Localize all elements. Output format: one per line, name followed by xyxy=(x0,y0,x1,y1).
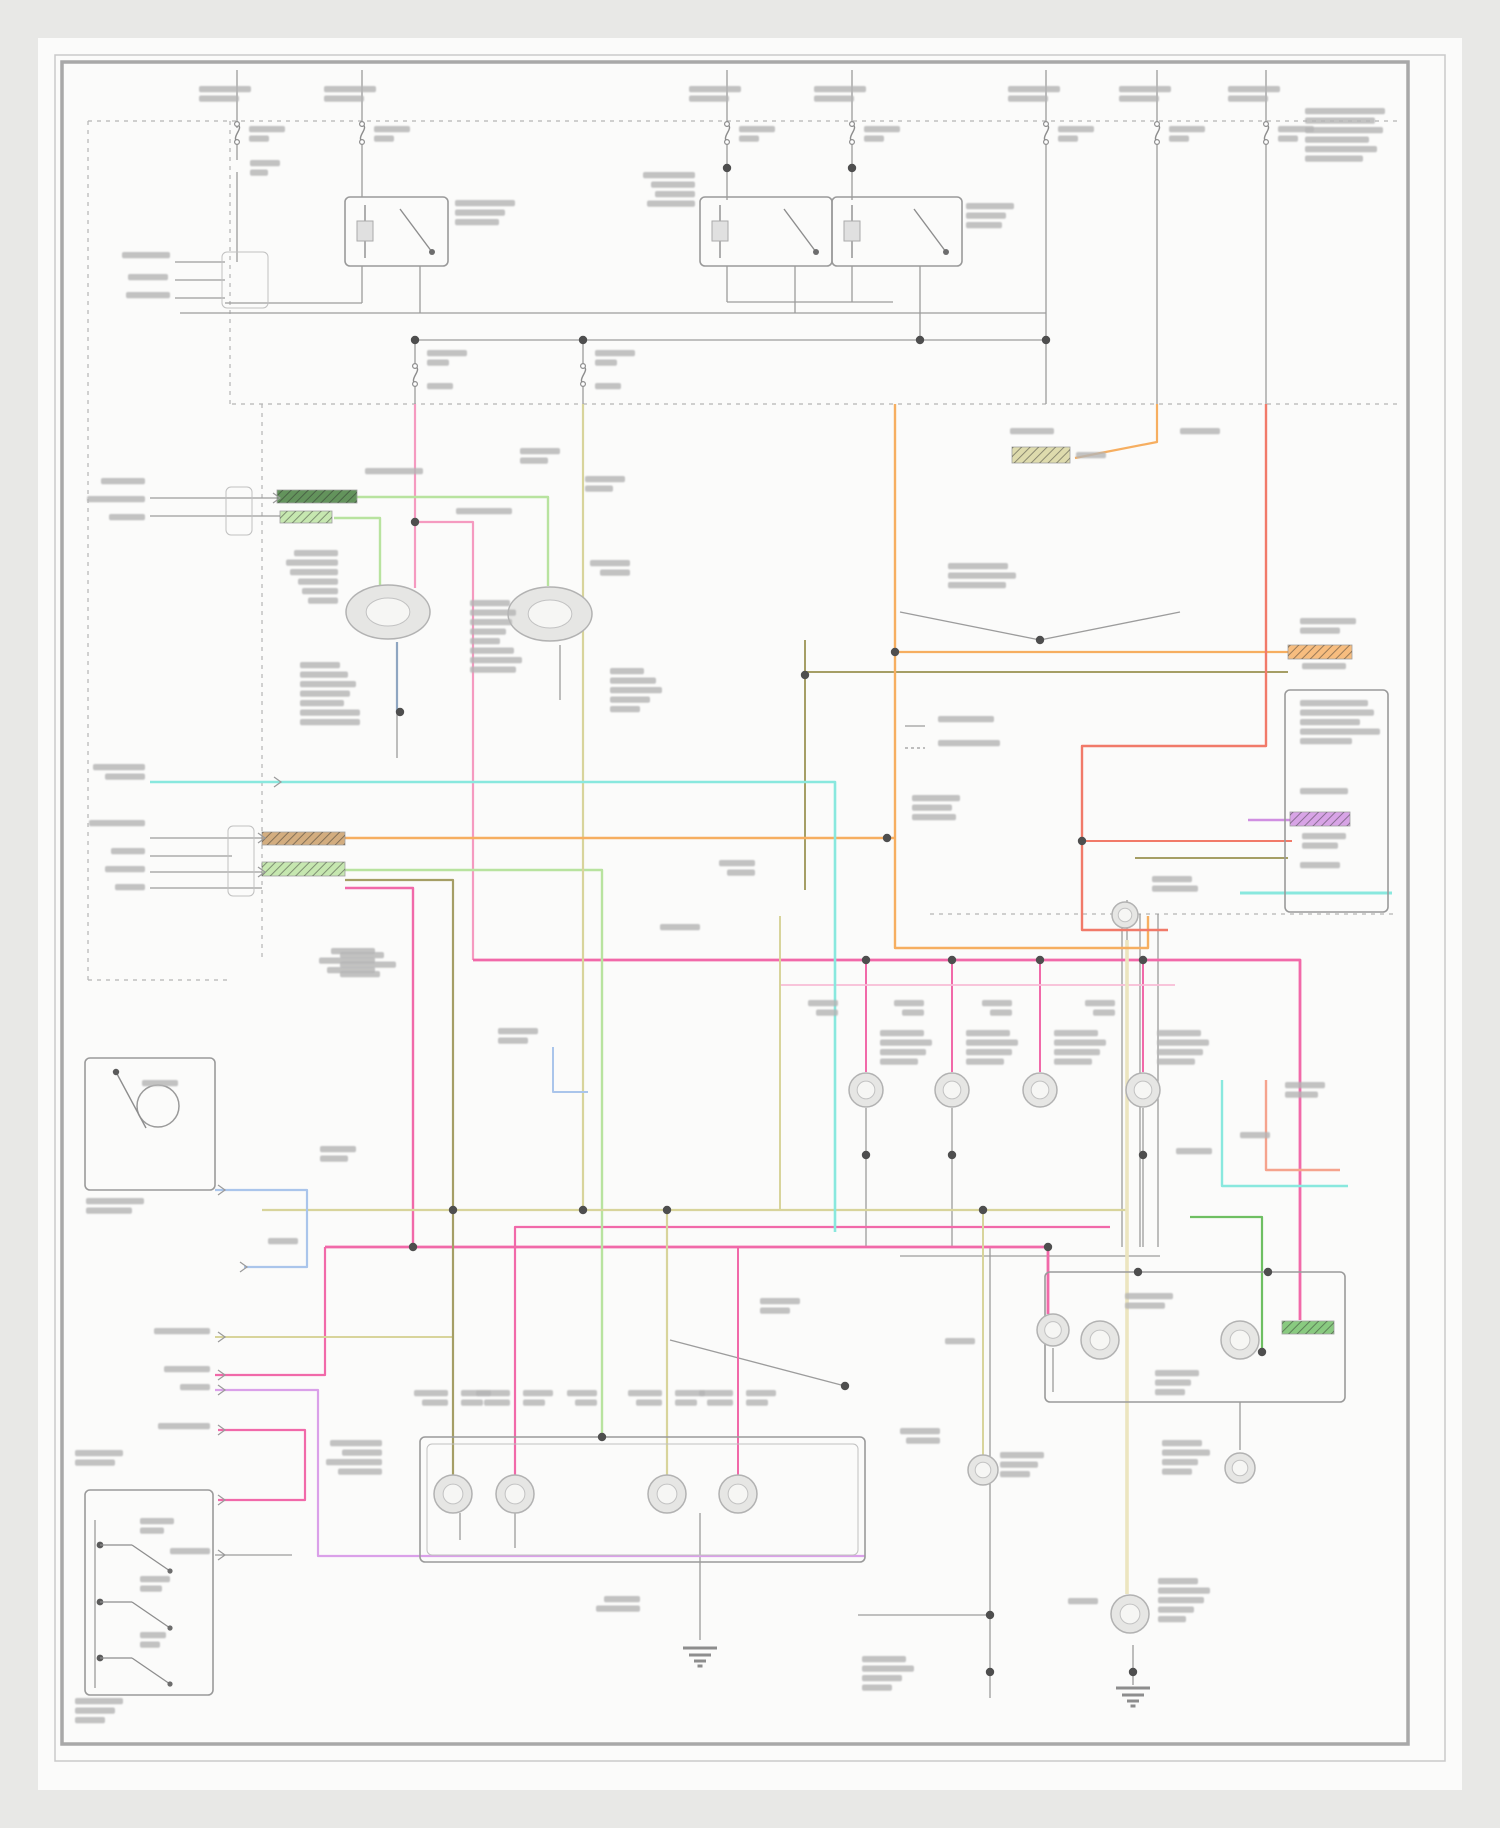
label-blob xyxy=(470,619,512,625)
label-blob xyxy=(89,820,145,826)
label-blob xyxy=(1300,710,1374,716)
label-blob xyxy=(1158,1607,1194,1613)
label-blob xyxy=(1054,1059,1092,1065)
label-blob xyxy=(1169,126,1205,132)
junction-dot xyxy=(841,1382,849,1390)
junction-dot xyxy=(891,648,899,656)
lamp-filament xyxy=(1120,1604,1140,1624)
junction-dot xyxy=(1129,1668,1137,1676)
label-blob xyxy=(864,136,884,142)
label-blob xyxy=(567,1390,597,1396)
label-blob xyxy=(966,1030,1010,1036)
label-blob xyxy=(590,560,630,566)
label-blob xyxy=(912,814,956,820)
label-blob xyxy=(1162,1450,1210,1456)
label-blob xyxy=(520,448,560,454)
fuse-terminal xyxy=(581,382,586,387)
label-blob xyxy=(1157,1059,1195,1065)
label-blob xyxy=(456,508,512,514)
label-blob xyxy=(105,866,145,872)
label-blob xyxy=(862,1675,902,1681)
label-blob xyxy=(115,884,145,890)
label-blob xyxy=(1158,1597,1204,1603)
label-blob xyxy=(862,1666,914,1672)
label-blob xyxy=(327,967,375,973)
connector-hatch-pattern xyxy=(1290,812,1350,826)
label-blob xyxy=(1300,719,1360,725)
label-blob xyxy=(966,1049,1012,1055)
junction-dot xyxy=(1042,336,1050,344)
junction-dot xyxy=(411,336,419,344)
junction-dot xyxy=(411,518,419,526)
label-blob xyxy=(610,687,662,693)
label-blob xyxy=(455,219,499,225)
fuse-terminal xyxy=(413,382,418,387)
label-blob xyxy=(498,1038,528,1044)
label-blob xyxy=(520,458,548,464)
label-blob xyxy=(326,1459,382,1465)
label-blob xyxy=(675,1400,697,1406)
fuse-terminal xyxy=(725,140,730,145)
label-blob xyxy=(170,1548,210,1554)
label-blob xyxy=(585,486,613,492)
label-blob xyxy=(1155,1370,1199,1376)
label-blob xyxy=(816,1010,838,1016)
label-blob xyxy=(1076,452,1106,458)
label-blob xyxy=(966,213,1006,219)
label-blob xyxy=(1302,663,1346,669)
label-blob xyxy=(880,1049,926,1055)
label-blob xyxy=(75,1698,123,1704)
label-blob xyxy=(966,203,1014,209)
label-blob xyxy=(1000,1452,1044,1458)
label-blob xyxy=(938,716,994,722)
label-blob xyxy=(647,201,695,207)
label-blob xyxy=(689,86,741,92)
label-blob xyxy=(1125,1293,1173,1299)
label-blob xyxy=(808,1000,838,1006)
junction-dot xyxy=(1139,956,1147,964)
junction-dot xyxy=(1139,1151,1147,1159)
label-blob xyxy=(111,848,145,854)
label-blob xyxy=(912,795,960,801)
label-blob xyxy=(470,610,516,616)
label-blob xyxy=(249,126,285,132)
junction-dot xyxy=(801,671,809,679)
lamp-filament xyxy=(1134,1081,1152,1099)
junction-dot xyxy=(663,1206,671,1214)
junction-dot xyxy=(986,1668,994,1676)
junction-dot xyxy=(948,956,956,964)
label-blob xyxy=(1158,1578,1198,1584)
label-blob xyxy=(93,764,145,770)
label-blob xyxy=(655,191,695,197)
fuse-terminal xyxy=(360,122,365,127)
label-blob xyxy=(814,96,854,102)
label-blob xyxy=(727,870,755,876)
junction-dot xyxy=(986,1611,994,1619)
lamp-filament xyxy=(1045,1322,1062,1339)
label-blob xyxy=(1300,729,1380,735)
label-blob xyxy=(122,252,170,258)
label-blob xyxy=(300,710,360,716)
junction-dot xyxy=(1036,636,1044,644)
label-blob xyxy=(1157,1030,1201,1036)
label-blob xyxy=(945,1338,975,1344)
label-blob xyxy=(651,182,695,188)
label-blob xyxy=(300,700,344,706)
label-blob xyxy=(1157,1049,1203,1055)
lamp-filament xyxy=(857,1081,875,1099)
label-blob xyxy=(140,1518,174,1524)
label-blob xyxy=(476,1390,510,1396)
label-blob xyxy=(1300,628,1340,634)
label-blob xyxy=(596,1606,640,1612)
fuse-terminal xyxy=(1155,140,1160,145)
connector-hatch-pattern xyxy=(1012,447,1070,463)
label-blob xyxy=(610,678,656,684)
label-blob xyxy=(298,579,338,585)
label-blob xyxy=(966,1040,1018,1046)
junction-dot xyxy=(1044,1243,1052,1251)
lamp-filament xyxy=(1090,1330,1110,1350)
label-blob xyxy=(75,1717,105,1723)
label-blob xyxy=(948,582,1006,588)
label-blob xyxy=(470,629,506,635)
label-blob xyxy=(1228,96,1268,102)
label-blob xyxy=(814,86,866,92)
label-blob xyxy=(948,563,1008,569)
label-blob xyxy=(422,1400,448,1406)
label-blob xyxy=(746,1390,776,1396)
label-blob xyxy=(142,1080,178,1086)
fuse-terminal xyxy=(1044,140,1049,145)
label-blob xyxy=(595,360,617,366)
label-blob xyxy=(498,1028,538,1034)
label-blob xyxy=(164,1366,210,1372)
label-blob xyxy=(75,1460,115,1466)
label-blob xyxy=(1155,1380,1191,1386)
label-blob xyxy=(365,468,423,474)
fuse-terminal xyxy=(1264,122,1269,127)
junction-dot xyxy=(1258,1348,1266,1356)
label-blob xyxy=(374,136,394,142)
label-blob xyxy=(610,697,650,703)
label-blob xyxy=(604,1596,640,1602)
label-blob xyxy=(1176,1148,1212,1154)
label-blob xyxy=(862,1656,906,1662)
label-blob xyxy=(1162,1440,1202,1446)
label-blob xyxy=(1162,1469,1192,1475)
label-blob xyxy=(938,740,1000,746)
label-blob xyxy=(1000,1471,1030,1477)
label-blob xyxy=(585,476,625,482)
label-blob xyxy=(739,136,759,142)
label-blob xyxy=(1158,1616,1186,1622)
fuse-terminal xyxy=(1044,122,1049,127)
switch-contact-dot xyxy=(167,1681,172,1686)
label-blob xyxy=(900,1428,940,1434)
label-blob xyxy=(290,569,338,575)
label-blob xyxy=(1300,618,1356,624)
lamp-filament xyxy=(1118,908,1132,922)
label-blob xyxy=(1162,1459,1198,1465)
lamp-filament xyxy=(443,1484,463,1504)
label-blob xyxy=(320,1156,348,1162)
label-blob xyxy=(324,96,364,102)
label-blob xyxy=(1305,146,1377,152)
junction-dot xyxy=(862,1151,870,1159)
label-blob xyxy=(1054,1030,1098,1036)
label-blob xyxy=(342,1450,382,1456)
label-blob xyxy=(1085,1000,1115,1006)
label-blob xyxy=(1010,428,1054,434)
label-blob xyxy=(982,1000,1012,1006)
label-blob xyxy=(1093,1010,1115,1016)
label-blob xyxy=(250,160,280,166)
label-blob xyxy=(300,672,348,678)
junction-dot xyxy=(1036,956,1044,964)
label-blob xyxy=(1285,1082,1325,1088)
fuse-terminal xyxy=(235,122,240,127)
label-blob xyxy=(894,1000,924,1006)
label-blob xyxy=(862,1685,892,1691)
label-blob xyxy=(324,86,376,92)
label-blob xyxy=(1302,843,1338,849)
label-blob xyxy=(109,514,145,520)
label-blob xyxy=(1169,136,1189,142)
label-blob xyxy=(880,1030,924,1036)
label-blob xyxy=(1240,1132,1270,1138)
label-blob xyxy=(128,274,168,280)
junction-dot xyxy=(848,164,856,172)
headlamp-switch-pivot xyxy=(113,1069,119,1075)
label-blob xyxy=(331,948,375,954)
connector-hatch-pattern xyxy=(262,862,345,876)
label-blob xyxy=(575,1400,597,1406)
label-blob xyxy=(374,126,410,132)
label-blob xyxy=(470,600,510,606)
label-blob xyxy=(1119,86,1171,92)
label-blob xyxy=(308,598,338,604)
label-blob xyxy=(746,1400,768,1406)
junction-dot xyxy=(579,1206,587,1214)
label-blob xyxy=(414,1390,448,1396)
fuse-terminal xyxy=(235,140,240,145)
label-blob xyxy=(199,96,239,102)
junction-dot xyxy=(1078,837,1086,845)
relay-contact-dot xyxy=(429,249,435,255)
label-blob xyxy=(338,1469,382,1475)
label-blob xyxy=(455,210,505,216)
lamp-filament xyxy=(505,1484,525,1504)
lamp-filament xyxy=(1230,1330,1250,1350)
fuse-terminal xyxy=(1155,122,1160,127)
label-blob xyxy=(628,1390,662,1396)
label-blob xyxy=(75,1708,115,1714)
relay-coil xyxy=(844,221,860,241)
label-blob xyxy=(990,1010,1012,1016)
junction-dot xyxy=(979,1206,987,1214)
label-blob xyxy=(320,1146,356,1152)
fuse-terminal xyxy=(413,364,418,369)
label-blob xyxy=(689,96,729,102)
lamp-filament xyxy=(366,598,410,626)
fuse-terminal xyxy=(360,140,365,145)
label-blob xyxy=(250,170,268,176)
label-blob xyxy=(1180,428,1220,434)
label-blob xyxy=(286,560,338,566)
junction-dot xyxy=(409,1243,417,1251)
label-blob xyxy=(319,958,375,964)
label-blob xyxy=(610,706,640,712)
fuse-terminal xyxy=(850,122,855,127)
label-blob xyxy=(1305,108,1385,114)
label-blob xyxy=(86,1208,132,1214)
lamp-filament xyxy=(1031,1081,1049,1099)
label-blob xyxy=(1300,738,1352,744)
label-blob xyxy=(643,172,695,178)
label-blob xyxy=(1000,1462,1038,1468)
label-blob xyxy=(636,1400,662,1406)
fuse-terminal xyxy=(1264,140,1269,145)
label-blob xyxy=(699,1390,733,1396)
switch-contact-dot xyxy=(167,1568,172,1573)
junction-dot xyxy=(948,1151,956,1159)
label-blob xyxy=(1119,96,1159,102)
lamp-filament xyxy=(943,1081,961,1099)
label-blob xyxy=(302,588,338,594)
label-blob xyxy=(1155,1389,1185,1395)
label-blob xyxy=(268,1238,298,1244)
label-blob xyxy=(140,1642,160,1648)
lamp-filament xyxy=(528,600,572,628)
label-blob xyxy=(154,1328,210,1334)
label-blob xyxy=(300,681,356,687)
label-blob xyxy=(1300,700,1368,706)
connector-hatch-pattern xyxy=(277,490,357,503)
lamp-filament xyxy=(728,1484,748,1504)
label-blob xyxy=(912,805,952,811)
label-blob xyxy=(1054,1049,1100,1055)
label-blob xyxy=(470,638,500,644)
junction-dot xyxy=(396,708,404,716)
label-blob xyxy=(1152,876,1192,882)
lamp-filament xyxy=(657,1484,677,1504)
label-blob xyxy=(739,126,775,132)
connector-hatch-pattern xyxy=(262,832,345,845)
label-blob xyxy=(1158,1588,1210,1594)
junction-dot xyxy=(1134,1268,1142,1276)
label-blob xyxy=(948,573,1016,579)
relay-contact-dot xyxy=(813,249,819,255)
label-blob xyxy=(1228,86,1280,92)
label-blob xyxy=(1300,788,1348,794)
junction-dot xyxy=(862,956,870,964)
label-blob xyxy=(126,292,170,298)
lamp-filament xyxy=(975,1462,991,1478)
label-blob xyxy=(300,662,340,668)
label-blob xyxy=(1008,86,1060,92)
label-blob xyxy=(1305,118,1375,124)
label-blob xyxy=(470,657,522,663)
junction-dot xyxy=(579,336,587,344)
label-blob xyxy=(105,774,145,780)
label-blob xyxy=(610,668,644,674)
label-blob xyxy=(140,1586,162,1592)
label-blob xyxy=(1305,127,1383,133)
label-blob xyxy=(470,648,514,654)
label-blob xyxy=(427,383,453,389)
connector-hatch-pattern xyxy=(280,511,332,523)
label-blob xyxy=(864,126,900,132)
label-blob xyxy=(1157,1040,1209,1046)
label-blob xyxy=(906,1438,940,1444)
relay-coil xyxy=(357,221,373,241)
label-blob xyxy=(1054,1040,1106,1046)
fuse-terminal xyxy=(725,122,730,127)
label-blob xyxy=(1285,1092,1318,1098)
label-blob xyxy=(760,1298,800,1304)
label-blob xyxy=(461,1400,483,1406)
label-blob xyxy=(1278,136,1298,142)
label-blob xyxy=(300,691,350,697)
label-blob xyxy=(880,1059,918,1065)
label-blob xyxy=(199,86,251,92)
label-blob xyxy=(1058,136,1078,142)
label-blob xyxy=(1058,126,1094,132)
label-blob xyxy=(595,350,635,356)
label-blob xyxy=(1152,886,1198,892)
label-blob xyxy=(427,350,467,356)
label-blob xyxy=(600,570,630,576)
label-blob xyxy=(86,1198,144,1204)
label-blob xyxy=(523,1390,553,1396)
label-blob xyxy=(470,667,516,673)
label-blob xyxy=(180,1384,210,1390)
label-blob xyxy=(1305,156,1363,162)
label-blob xyxy=(902,1010,924,1016)
label-blob xyxy=(455,200,515,206)
label-blob xyxy=(1125,1303,1165,1309)
label-blob xyxy=(140,1632,166,1638)
junction-dot xyxy=(598,1433,606,1441)
label-blob xyxy=(595,383,621,389)
label-blob xyxy=(484,1400,510,1406)
label-blob xyxy=(140,1528,164,1534)
label-blob xyxy=(880,1040,932,1046)
label-blob xyxy=(1305,137,1369,143)
junction-dot xyxy=(449,1206,457,1214)
label-blob xyxy=(1008,96,1048,102)
label-blob xyxy=(1068,1598,1098,1604)
label-blob xyxy=(966,1059,1004,1065)
relay-contact-dot xyxy=(943,249,949,255)
lamp-filament xyxy=(1232,1460,1248,1476)
junction-dot xyxy=(1264,1268,1272,1276)
label-blob xyxy=(1300,862,1340,868)
relay-coil xyxy=(712,221,728,241)
fuse-terminal xyxy=(581,364,586,369)
fuse-terminal xyxy=(850,140,855,145)
label-blob xyxy=(660,924,700,930)
junction-dot xyxy=(916,336,924,344)
junction-dot xyxy=(883,834,891,842)
switch-contact-dot xyxy=(167,1625,172,1630)
connector-hatch-pattern xyxy=(1282,1321,1334,1334)
wiring-diagram-page xyxy=(0,0,1500,1828)
label-blob xyxy=(158,1423,210,1429)
